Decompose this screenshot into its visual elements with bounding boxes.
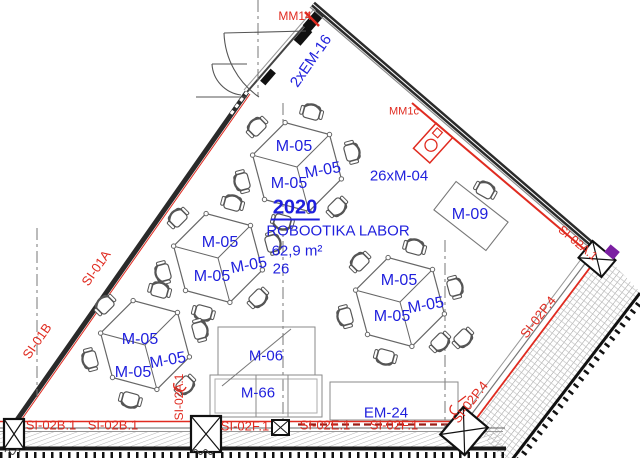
floorplan-drawing [0,0,640,458]
table-cluster-m05 [80,280,211,411]
wall-glazed-door [244,8,323,92]
device-mm1c [413,123,452,163]
radiator-em24 [330,382,458,420]
table-cluster-m05 [232,102,363,233]
wall-southeast [463,246,640,458]
wall-south [0,422,506,456]
floor-plan: 2xEM-1626xM-042020ROBOOTIKA LABOR62,9 m²… [0,0,640,458]
chair [450,325,477,352]
cabinet-m06 [210,327,322,417]
table-cluster-m05 [335,237,466,368]
table-cluster-m05 [153,193,284,324]
